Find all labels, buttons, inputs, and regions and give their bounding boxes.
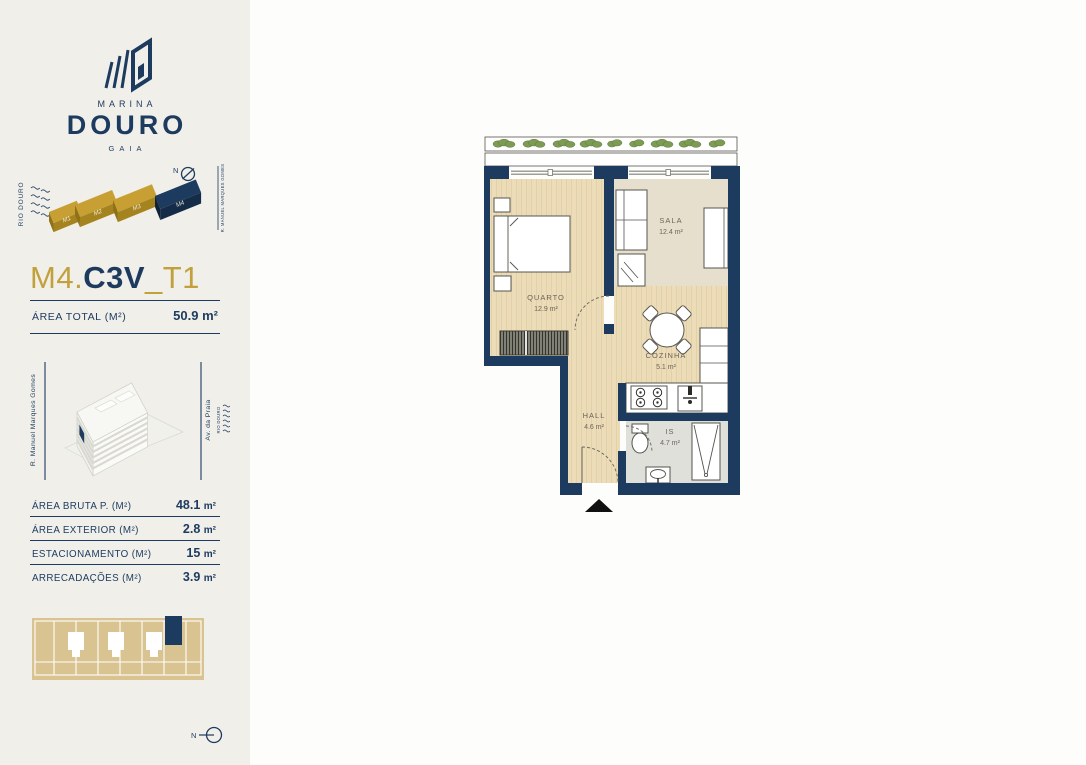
unit-title: M4.C3V_T1 xyxy=(30,260,220,296)
floorplan-drawing: QUARTO 12.9 m² SALA 12.4 m² COZINHA 5.1 … xyxy=(484,134,740,516)
building-isometric xyxy=(65,383,183,476)
shower-icon xyxy=(692,423,720,480)
masterplan-block-m2: M2 xyxy=(75,190,117,227)
unit-typology: _T1 xyxy=(145,260,200,295)
floorplan-sheet: MARINA DOURO GAIA RIO DOURO M1 xyxy=(0,0,1086,765)
unit-block-code: M4. xyxy=(30,260,83,295)
entrance-arrow-icon xyxy=(585,499,613,512)
area-row-bruta: ÁREA BRUTA P. (M²) 48.1 m² xyxy=(30,493,220,517)
svg-text:4.6 m²: 4.6 m² xyxy=(584,424,605,431)
river-waves-icon xyxy=(31,187,50,216)
street-left-label: R. Manuel Marques Gomes xyxy=(30,374,37,467)
river-label-small: RIO DOURO xyxy=(216,406,221,433)
balcony-planter xyxy=(485,137,737,151)
area-row-estacionamento: ESTACIONAMENTO (M²) 15 m² xyxy=(30,541,220,565)
room-label-cozinha: COZINHA xyxy=(646,351,687,360)
area-total-value: 50.9 m² xyxy=(173,308,218,323)
unit-title-block: M4.C3V_T1 ÁREA TOTAL (M²) 50.9 m² xyxy=(30,260,220,334)
room-label-quarto: QUARTO xyxy=(527,293,565,302)
masterplan-diagram: RIO DOURO M1 M2 xyxy=(15,158,235,246)
room-label-hall: HALL xyxy=(583,411,606,420)
dining-table xyxy=(650,313,684,347)
area-row-arrecadacoes: ARRECADAÇÕES (M²) 3.9 m² xyxy=(30,565,220,588)
tv-sideboard xyxy=(704,208,728,268)
area-row-exterior: ÁREA EXTERIOR (M²) 2.8 m² xyxy=(30,517,220,541)
svg-text:12.4 m²: 12.4 m² xyxy=(659,229,683,236)
masterplan-street-label: R. MANUEL MARQUES GOMES xyxy=(220,164,225,233)
divider-line xyxy=(30,333,220,334)
sidebar: MARINA DOURO GAIA RIO DOURO M1 xyxy=(0,0,250,765)
masterplan-block-m3: M3 xyxy=(113,184,157,222)
brand-logo: MARINA DOURO GAIA xyxy=(0,36,250,153)
north-compass-icon: N xyxy=(190,722,234,748)
brand-marina: MARINA xyxy=(0,99,250,109)
area-total-row: ÁREA TOTAL (M²) 50.9 m² xyxy=(30,301,220,329)
svg-text:N: N xyxy=(173,166,178,175)
areas-table: ÁREA BRUTA P. (M²) 48.1 m² ÁREA EXTERIOR… xyxy=(30,493,220,588)
river-waves-small-icon xyxy=(223,405,230,432)
kitchen-sink-icon xyxy=(678,386,702,411)
wardrobe xyxy=(500,331,568,355)
svg-text:N: N xyxy=(191,731,196,740)
brand-gaia: GAIA xyxy=(0,144,250,153)
brand-douro: DOURO xyxy=(0,110,250,141)
keyplan-highlighted-unit xyxy=(165,616,182,645)
street-right-label: Av. da Praia xyxy=(205,399,212,440)
toilet-icon xyxy=(632,424,648,453)
masterplan-river-label: RIO DOURO xyxy=(18,182,25,227)
nightstand xyxy=(494,276,511,291)
kitchen-tall-units xyxy=(700,328,728,383)
area-total-label: ÁREA TOTAL (M²) xyxy=(32,311,126,323)
svg-text:4.7 m²: 4.7 m² xyxy=(660,440,681,447)
bed xyxy=(494,216,570,272)
masterplan-north-compass-icon: N xyxy=(173,166,195,181)
room-label-sala: SALA xyxy=(659,216,682,225)
balcony-strip xyxy=(485,153,737,166)
svg-text:12.9 m²: 12.9 m² xyxy=(534,306,558,313)
room-label-is: IS xyxy=(665,427,674,436)
bathroom-sink-icon xyxy=(646,467,670,483)
nightstand xyxy=(494,198,510,212)
location-3d-view: R. Manuel Marques Gomes Av. da Praia xyxy=(25,356,230,490)
unit-code: C3V xyxy=(83,260,145,295)
keyplan xyxy=(28,612,212,692)
masterplan-block-m4-highlight: M4 xyxy=(155,180,201,221)
building-logo-icon xyxy=(86,36,164,94)
svg-text:5.1 m²: 5.1 m² xyxy=(656,364,677,371)
stove-icon xyxy=(631,386,667,409)
